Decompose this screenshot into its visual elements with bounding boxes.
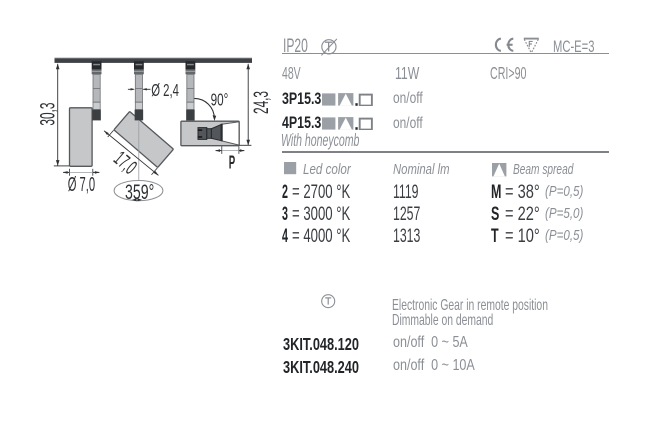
svg-text:90°: 90° bbox=[211, 90, 229, 110]
svg-text:24,3: 24,3 bbox=[248, 91, 273, 114]
svg-text:Ø 7,0: Ø 7,0 bbox=[68, 174, 95, 196]
svg-text:17,0: 17,0 bbox=[109, 147, 141, 179]
svg-text:P: P bbox=[229, 154, 236, 174]
svg-text:30,3: 30,3 bbox=[34, 103, 59, 126]
svg-text:Ø 2,4: Ø 2,4 bbox=[151, 80, 179, 100]
